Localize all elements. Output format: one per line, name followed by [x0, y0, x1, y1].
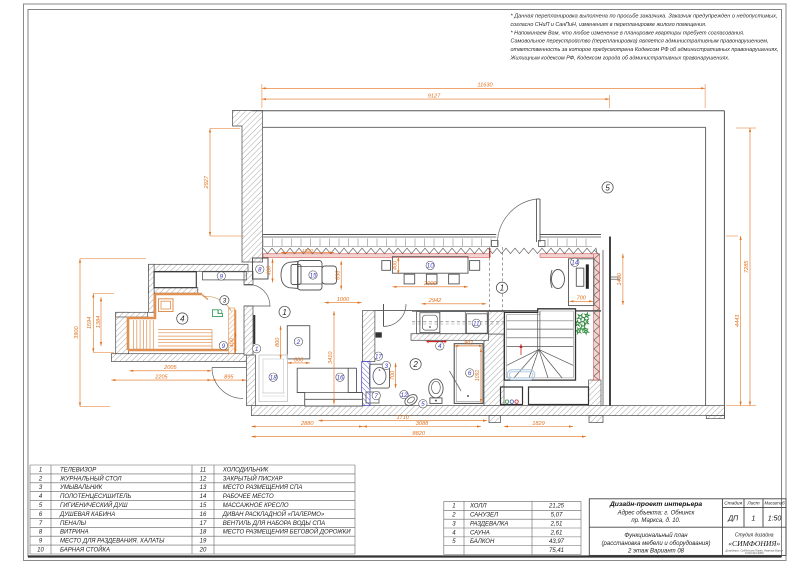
svg-text:7: 7 [374, 393, 378, 400]
svg-text:ВИТРИНА: ВИТРИНА [60, 530, 89, 536]
svg-text:10: 10 [427, 263, 435, 270]
svg-text:600: 600 [294, 357, 304, 363]
svg-text:8: 8 [258, 267, 262, 274]
svg-text:Студия дизайна: Студия дизайна [735, 532, 774, 539]
svg-text:1829: 1829 [532, 421, 544, 427]
svg-text:1500: 1500 [302, 248, 313, 254]
svg-text:2942: 2942 [428, 298, 442, 304]
svg-text:12: 12 [200, 476, 207, 482]
svg-text:МЕСТО РАЗМЕЩЕНИЯ СПА: МЕСТО РАЗМЕЩЕНИЯ СПА [223, 485, 303, 491]
svg-text:2: 2 [451, 513, 456, 519]
svg-text:17: 17 [375, 354, 383, 361]
svg-text:Стадия: Стадия [724, 501, 742, 507]
svg-text:8-910-910-9080: 8-910-910-9080 [745, 551, 764, 555]
svg-text:400: 400 [393, 260, 399, 270]
svg-text:УМЫВАЛЬНИК: УМЫВАЛЬНИК [59, 485, 103, 491]
svg-text:700: 700 [390, 370, 396, 380]
svg-text:2: 2 [412, 360, 418, 369]
svg-text:19: 19 [200, 539, 207, 545]
svg-text:БАРНАЯ СТОЙКА: БАРНАЯ СТОЙКА [60, 546, 110, 554]
svg-text:Масштаб: Масштаб [764, 501, 785, 506]
svg-text:ТЕЛЕВИЗОР: ТЕЛЕВИЗОР [60, 467, 96, 473]
svg-text:18: 18 [200, 530, 207, 536]
svg-text:8820: 8820 [413, 431, 426, 437]
svg-text:6: 6 [468, 370, 472, 377]
svg-text:400: 400 [230, 337, 236, 347]
svg-text:1: 1 [282, 308, 286, 317]
svg-text:МАССАЖНОЕ КРЕСЛО: МАССАЖНОЕ КРЕСЛО [223, 503, 289, 509]
svg-text:3088: 3088 [416, 421, 429, 427]
svg-text:2205: 2205 [154, 375, 168, 381]
svg-text:1: 1 [752, 516, 756, 523]
svg-text:согласно СНиП и СанПиН, измене: согласно СНиП и СанПиН, изменениях в пер… [511, 22, 707, 28]
svg-text:1:50: 1:50 [768, 516, 782, 523]
svg-text:16: 16 [200, 512, 207, 518]
svg-text:2 этаж Вариант 08: 2 этаж Вариант 08 [627, 549, 685, 555]
svg-text:895: 895 [224, 375, 234, 381]
svg-text:РАБОЧЕЕ МЕСТО: РАБОЧЕЕ МЕСТО [223, 494, 274, 500]
svg-text:2880: 2880 [300, 421, 314, 427]
svg-text:БАЛКОН: БАЛКОН [470, 539, 495, 545]
svg-text:1400: 1400 [617, 272, 623, 285]
svg-text:2927: 2927 [204, 175, 210, 189]
svg-text:пр. Маркса, д. 10.: пр. Маркса, д. 10. [631, 518, 680, 524]
svg-text:15: 15 [309, 272, 317, 279]
svg-text:700: 700 [577, 296, 587, 302]
svg-text:2,51: 2,51 [550, 521, 563, 527]
svg-text:15: 15 [200, 503, 207, 509]
svg-text:2000: 2000 [423, 281, 437, 287]
svg-text:12: 12 [400, 392, 408, 399]
svg-text:ГИГИЕНИЧЕСКИЙ ДУШ: ГИГИЕНИЧЕСКИЙ ДУШ [60, 501, 128, 509]
svg-text:4: 4 [438, 343, 442, 350]
svg-text:9: 9 [222, 343, 226, 350]
svg-text:20: 20 [199, 548, 207, 554]
svg-text:ХОЛЛ: ХОЛЛ [469, 504, 487, 510]
svg-text:7285: 7285 [744, 260, 750, 273]
svg-text:ДУШЕВАЯ КАБИНА: ДУШЕВАЯ КАБИНА [59, 512, 115, 518]
svg-text:ДИВАН РАСКЛАДНОЙ «ПАЛЕРМО»: ДИВАН РАСКЛАДНОЙ «ПАЛЕРМО» [222, 510, 325, 518]
svg-text:902: 902 [464, 340, 473, 346]
svg-text:* Данная перепланировка выполн: * Данная перепланировка выполнена по про… [511, 14, 778, 20]
svg-text:11630: 11630 [477, 83, 493, 89]
svg-text:ХОЛОДИЛЬНИК: ХОЛОДИЛЬНИК [222, 467, 269, 473]
svg-text:ВЕНТИЛЬ ДЛЯ НАБОРА ВОДЫ СПА: ВЕНТИЛЬ ДЛЯ НАБОРА ВОДЫ СПА [223, 521, 325, 527]
svg-text:4443: 4443 [735, 314, 741, 327]
svg-text:13: 13 [200, 485, 207, 491]
svg-text:9: 9 [220, 273, 224, 280]
svg-text:1000: 1000 [337, 297, 350, 303]
svg-text:ДП: ДП [727, 516, 739, 523]
svg-text:* Напоминаем Вам, что любое из: * Напоминаем Вам, что любое изменение в … [511, 30, 745, 36]
svg-text:3410: 3410 [328, 351, 334, 364]
svg-text:МЕСТО РАЗМЕЩЕНИЯ БЕГОВОЙ ДОРОЖ: МЕСТО РАЗМЕЩЕНИЯ БЕГОВОЙ ДОРОЖКИ [223, 528, 351, 536]
svg-text:18: 18 [270, 375, 278, 382]
svg-text:РАЗДЕВАЛКА: РАЗДЕВАЛКА [470, 521, 508, 527]
svg-text:1: 1 [39, 467, 42, 473]
svg-text:2: 2 [296, 339, 301, 346]
svg-text:САНУЗЕЛ: САНУЗЕЛ [470, 513, 499, 519]
svg-text:3900: 3900 [74, 326, 80, 339]
svg-text:1594: 1594 [87, 317, 93, 329]
svg-text:1384: 1384 [96, 316, 102, 328]
svg-text:ПОЛОТЕНЦЕСУШИТЕЛЬ: ПОЛОТЕНЦЕСУШИТЕЛЬ [60, 494, 131, 500]
svg-text:75,41: 75,41 [549, 548, 564, 554]
svg-text:3: 3 [223, 298, 227, 305]
svg-text:800: 800 [275, 337, 281, 347]
svg-text:1710: 1710 [396, 415, 409, 421]
svg-text:43,97: 43,97 [549, 539, 565, 545]
svg-text:1: 1 [500, 284, 504, 293]
svg-text:Дизайн-проект интерьера: Дизайн-проект интерьера [609, 500, 703, 508]
svg-text:2005: 2005 [163, 365, 177, 371]
svg-text:3: 3 [385, 363, 389, 370]
svg-text:10: 10 [37, 548, 44, 554]
svg-text:2,61: 2,61 [550, 530, 563, 536]
svg-text:ответственность за которое пре: ответственность за которое предусмотрена… [511, 47, 779, 53]
svg-text:(расстановка мебели и оборудов: (расстановка мебели и оборудования) [602, 541, 711, 547]
svg-text:1: 1 [452, 504, 455, 510]
svg-text:17: 17 [200, 521, 207, 527]
svg-text:11: 11 [473, 321, 480, 328]
svg-text:1: 1 [255, 346, 259, 353]
svg-text:ПЕНАЛЫ: ПЕНАЛЫ [60, 521, 87, 527]
svg-text:11: 11 [200, 467, 206, 473]
svg-text:400: 400 [267, 265, 273, 275]
svg-text:Функциональный план: Функциональный план [624, 532, 688, 539]
svg-text:ЖУРНАЛЬНЫЙ СТОЛ: ЖУРНАЛЬНЫЙ СТОЛ [59, 474, 122, 482]
svg-text:МЕСТО ДЛЯ РАЗДЕВАНИЯ. ХАЛАТЫ: МЕСТО ДЛЯ РАЗДЕВАНИЯ. ХАЛАТЫ [60, 539, 165, 545]
svg-text:5: 5 [605, 183, 610, 192]
svg-text:4: 4 [180, 314, 185, 323]
svg-text:14: 14 [200, 494, 207, 500]
svg-text:ЗАКРЫТЫЙ ПИСУАР: ЗАКРЫТЫЙ ПИСУАР [223, 474, 283, 482]
svg-text:Самовольное переустройство (пе: Самовольное переустройство (перепланиров… [511, 38, 769, 45]
svg-text:Жилищным кодексом РФ, Кодексом: Жилищным кодексом РФ, Кодексом города об… [510, 56, 730, 62]
svg-text:698: 698 [335, 270, 341, 280]
svg-text:16: 16 [336, 375, 344, 382]
svg-text:21,25: 21,25 [548, 504, 565, 510]
svg-text:2: 2 [38, 476, 43, 482]
svg-text:14: 14 [571, 260, 579, 267]
svg-text:5: 5 [421, 401, 425, 408]
svg-text:5,07: 5,07 [551, 513, 563, 519]
svg-text:Адрес объекта: г. Обнинск: Адрес объекта: г. Обнинск [617, 511, 696, 517]
svg-text:Лист: Лист [746, 501, 759, 507]
svg-text:9127: 9127 [428, 94, 441, 100]
svg-text:1092: 1092 [475, 370, 481, 382]
svg-text:«СИМФОНИЯ»: «СИМФОНИЯ» [728, 539, 780, 548]
svg-text:САУНА: САУНА [470, 530, 490, 536]
